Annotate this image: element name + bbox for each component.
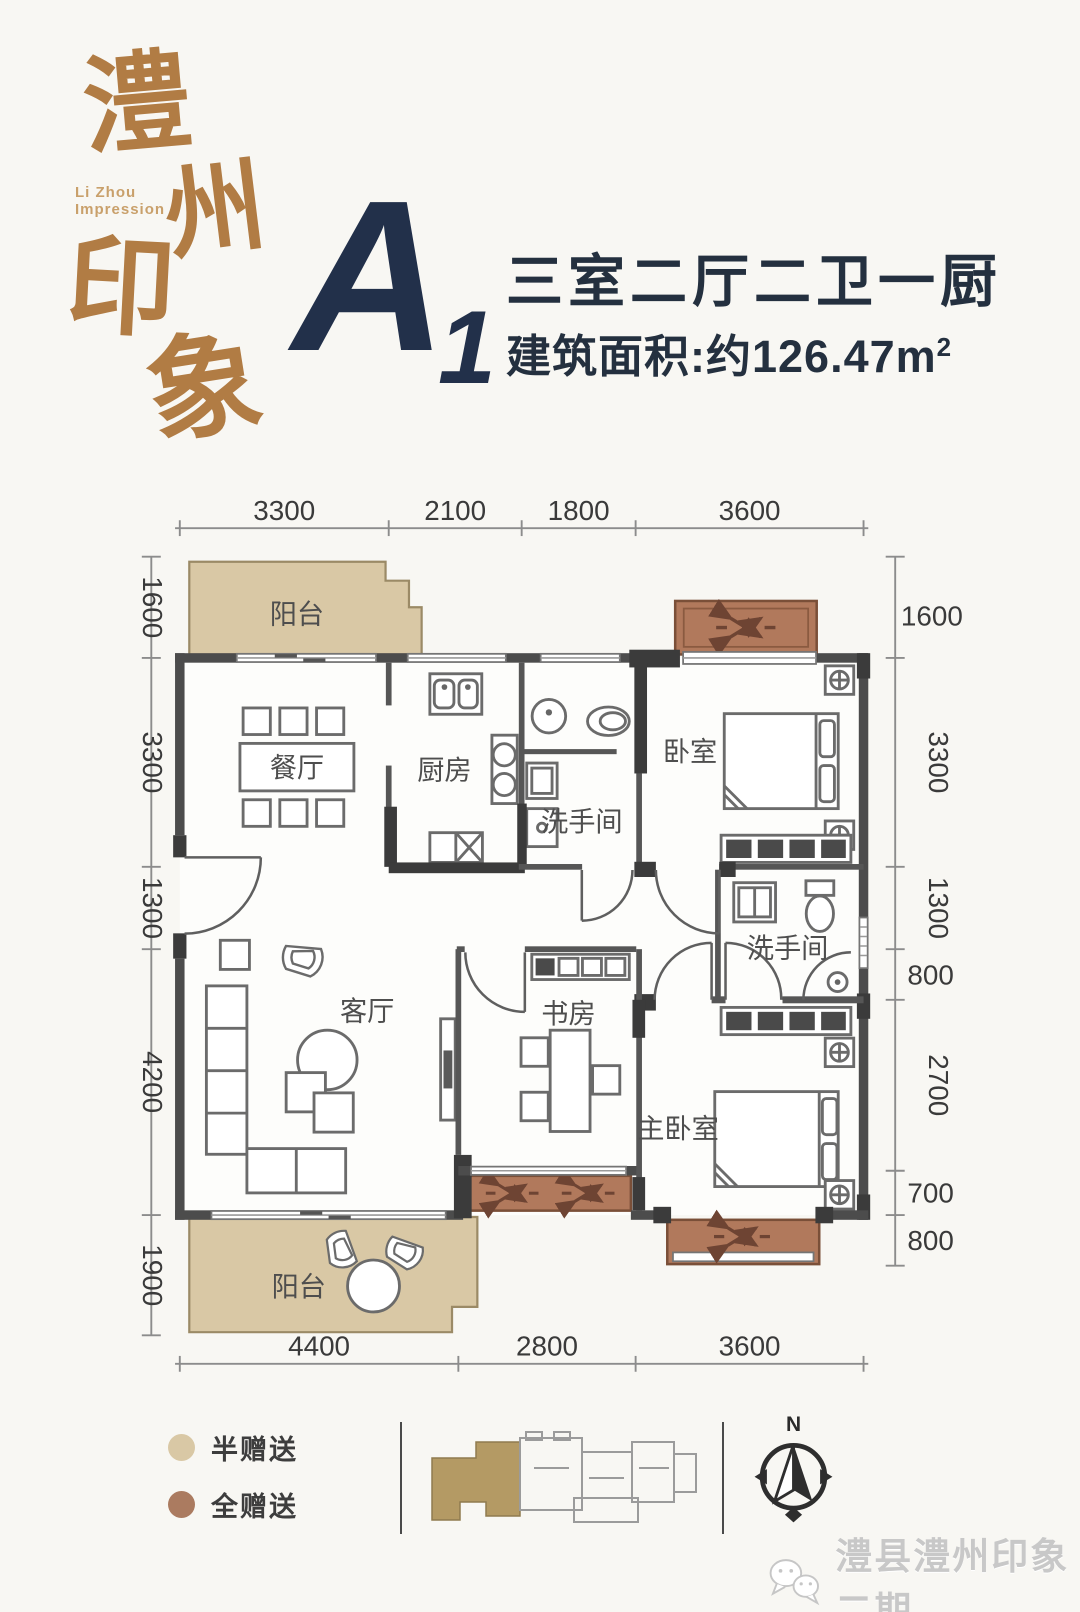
balcony-top: 阳台 bbox=[189, 562, 421, 655]
logo-char: 象 bbox=[139, 322, 269, 452]
room-label-bath2: 洗手间 bbox=[747, 932, 829, 963]
half-gift-dot-icon bbox=[168, 1434, 195, 1461]
logo-char: 澧 bbox=[78, 45, 195, 162]
unit-letter: A bbox=[292, 168, 447, 383]
divider bbox=[400, 1422, 402, 1534]
room-label-study: 书房 bbox=[541, 998, 595, 1029]
compass: N bbox=[746, 1412, 841, 1537]
svg-text:3600: 3600 bbox=[719, 1331, 781, 1362]
room-label-bedroom: 卧室 bbox=[663, 736, 717, 767]
balcony-bottom: 阳台 bbox=[189, 1217, 477, 1332]
study-bay-window bbox=[463, 1176, 631, 1211]
legend-item-half-gift: 半赠送 bbox=[168, 1428, 298, 1467]
svg-text:3300: 3300 bbox=[923, 731, 954, 793]
legend-label: 全赠送 bbox=[211, 1485, 298, 1524]
legend: 半赠送 全赠送 bbox=[168, 1428, 298, 1542]
room-label-living: 客厅 bbox=[340, 996, 394, 1027]
room-label-balcony-top: 阳台 bbox=[270, 599, 324, 630]
svg-text:2800: 2800 bbox=[516, 1331, 578, 1362]
legend-item-full-gift: 全赠送 bbox=[168, 1485, 298, 1524]
room-label-balcony-bottom: 阳台 bbox=[272, 1271, 326, 1302]
compass-needle-left bbox=[775, 1444, 794, 1501]
svg-text:3300: 3300 bbox=[253, 495, 315, 526]
svg-text:1800: 1800 bbox=[548, 495, 610, 526]
master-bay-window bbox=[667, 1220, 819, 1264]
room-label-dining: 餐厅 bbox=[270, 752, 324, 783]
watermark-text: 澧县澧州印象二期 bbox=[835, 1526, 1080, 1612]
watermark: 澧县澧州印象二期 bbox=[766, 1526, 1080, 1612]
area-text: 建筑面积:约126.47m2 bbox=[506, 320, 952, 385]
svg-text:3600: 3600 bbox=[719, 495, 781, 526]
wechat-icon bbox=[766, 1548, 827, 1612]
dimensions-top: 3300 2100 1800 3600 bbox=[175, 495, 868, 536]
balcony-table bbox=[348, 1260, 400, 1312]
floor-plan: 阳台 阳台 bbox=[88, 490, 968, 1383]
keyplan-outline bbox=[520, 1432, 696, 1522]
svg-text:3300: 3300 bbox=[137, 731, 168, 793]
page-title: 三室二厅二卫一厨 bbox=[506, 236, 1002, 318]
compass-needle-right bbox=[794, 1444, 813, 1501]
svg-text:2700: 2700 bbox=[923, 1054, 954, 1116]
full-gift-dot-icon bbox=[168, 1491, 195, 1518]
svg-text:800: 800 bbox=[907, 1225, 953, 1256]
logo-subtitle: Li Zhou Impression bbox=[75, 184, 165, 218]
svg-text:2100: 2100 bbox=[424, 495, 486, 526]
keyplan-highlight-unit bbox=[432, 1442, 520, 1520]
room-label-master: 主卧室 bbox=[637, 1113, 719, 1144]
svg-text:1300: 1300 bbox=[137, 877, 168, 939]
svg-text:1300: 1300 bbox=[923, 877, 954, 939]
dimensions-right: 1600 3300 1300 800 2700 700 800 bbox=[886, 557, 963, 1266]
compass-north-label: N bbox=[786, 1413, 801, 1436]
ac-platform bbox=[675, 601, 816, 654]
floor-plan-svg: 阳台 阳台 bbox=[88, 490, 968, 1383]
building-key-plan bbox=[424, 1428, 704, 1538]
svg-text:700: 700 bbox=[907, 1177, 953, 1208]
svg-text:4400: 4400 bbox=[288, 1331, 350, 1362]
svg-text:1900: 1900 bbox=[137, 1244, 168, 1306]
svg-text:4200: 4200 bbox=[137, 1051, 168, 1113]
svg-text:800: 800 bbox=[907, 960, 953, 991]
floorplan-page: 澧 州 印 象 Li Zhou Impression A 1 三室二厅二卫一厨 … bbox=[0, 0, 1080, 1612]
divider bbox=[722, 1422, 724, 1534]
svg-text:1600: 1600 bbox=[137, 576, 168, 638]
room-label-kitchen: 厨房 bbox=[417, 754, 471, 785]
dimensions-left: 1600 3300 1300 4200 1900 bbox=[137, 557, 168, 1336]
room-label-bath1: 洗手间 bbox=[541, 806, 623, 837]
svg-text:1600: 1600 bbox=[901, 601, 963, 632]
dimensions-bottom: 4400 2800 3600 bbox=[175, 1331, 868, 1372]
legend-label: 半赠送 bbox=[211, 1428, 298, 1467]
unit-number: 1 bbox=[438, 296, 496, 400]
